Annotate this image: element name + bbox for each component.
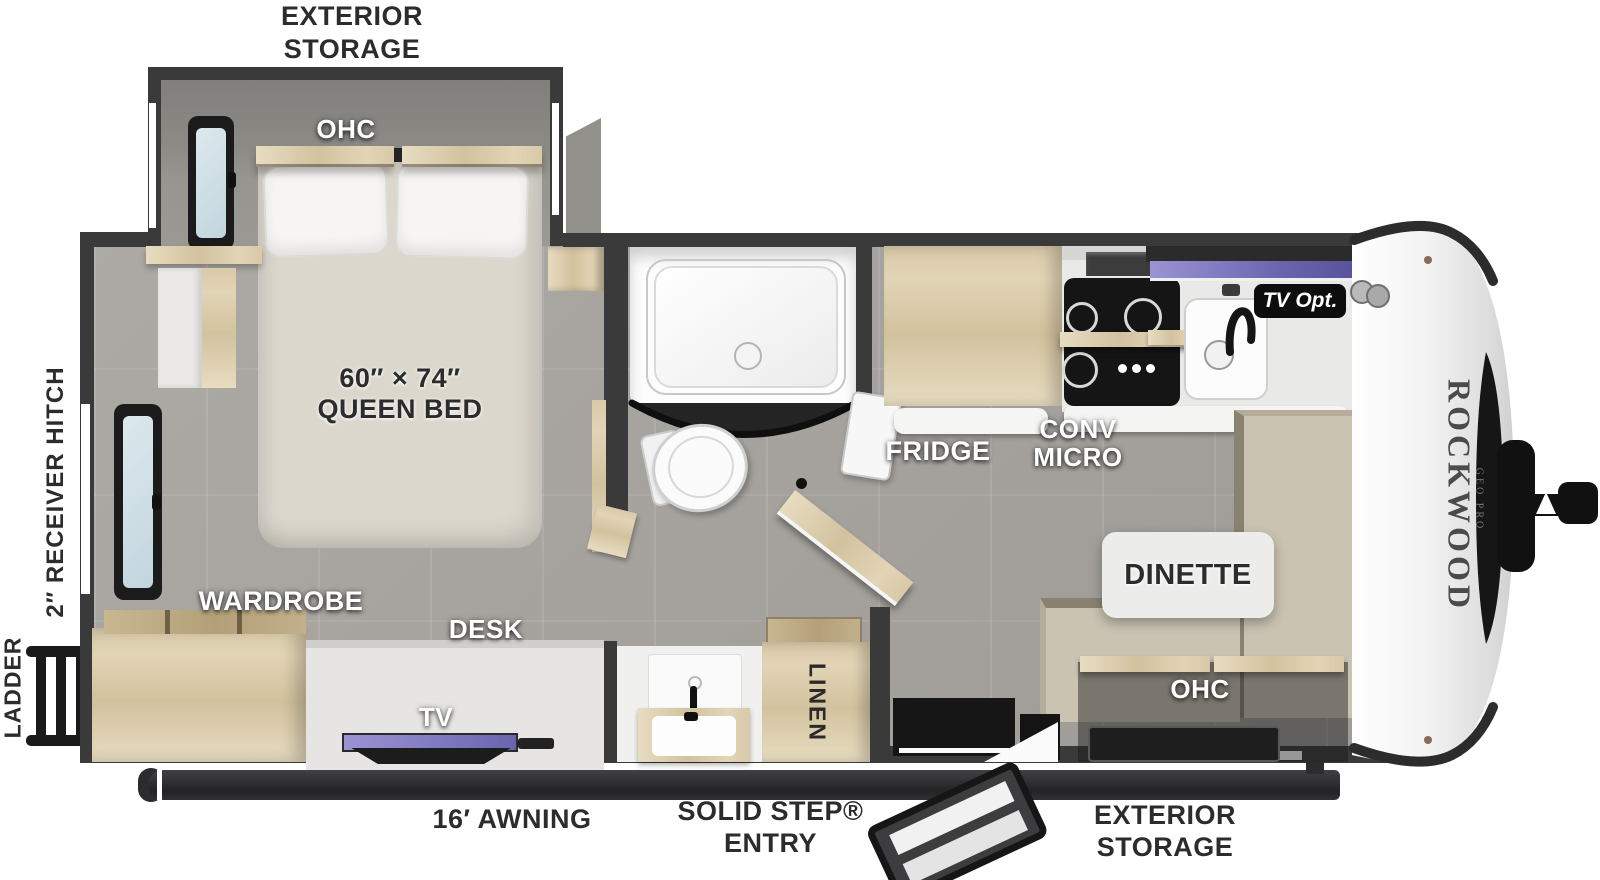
exterior-storage-bottom-line1: EXTERIOR [1045,800,1285,832]
cap-rivet [1424,256,1432,264]
awning-label: 16′ AWNING [412,804,612,835]
floorplan-canvas: EXTERIOR STORAGE 2″ RECEIVER HITCH LADDE… [0,0,1600,880]
solid-step-entry-label: SOLID STEP® ENTRY [648,796,893,860]
solid-step-line1: SOLID STEP® [648,796,893,828]
exterior-storage-bottom-label: EXTERIOR STORAGE [1045,800,1285,864]
brand-name: ROCKWOOD [1441,336,1478,656]
brand-sub: GEO PRO [1474,420,1485,580]
hitch-jack-icon [1497,440,1535,572]
exterior-storage-bottom-line2: STORAGE [1045,832,1285,864]
hitch-coupler-icon [1558,482,1598,524]
cap-rivet [1424,736,1432,744]
solid-step-line2: ENTRY [648,828,893,860]
front-cap-svg [0,0,1600,880]
cap-knob [1366,284,1390,308]
